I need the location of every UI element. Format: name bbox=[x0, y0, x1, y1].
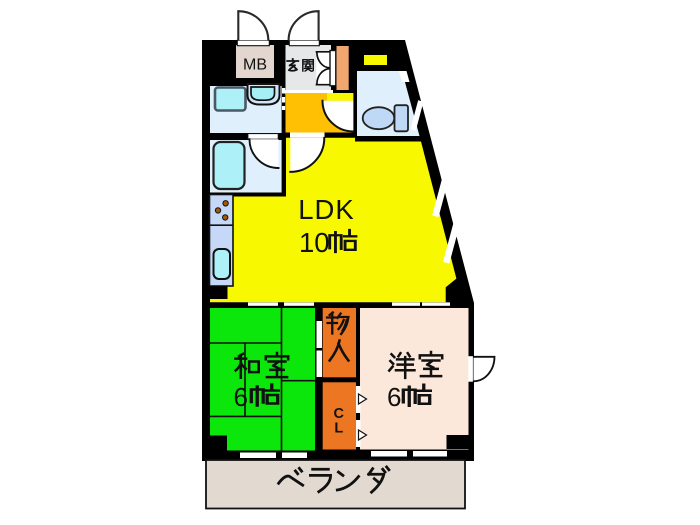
svg-text:6: 6 bbox=[387, 382, 401, 412]
svg-text:L: L bbox=[334, 421, 343, 437]
svg-text:6: 6 bbox=[234, 382, 248, 412]
svg-text:MB: MB bbox=[243, 57, 267, 74]
svg-text:LDK: LDK bbox=[298, 194, 355, 225]
svg-text:10: 10 bbox=[299, 227, 330, 258]
